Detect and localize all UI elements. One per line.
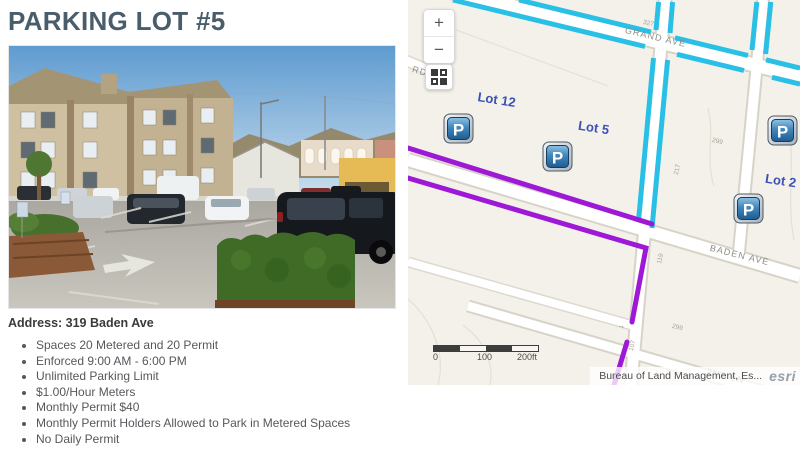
svg-text:P: P [453,121,464,140]
svg-text:P: P [777,123,788,142]
attribution-text: Bureau of Land Management, Es... [599,370,762,382]
svg-text:P: P [743,201,754,220]
svg-text:299: 299 [711,137,724,146]
lot-12-label: Lot 12 [477,89,517,110]
svg-text:P: P [552,149,563,168]
zoom-out-button[interactable]: − [424,37,454,63]
map-zoom-control: + − [423,9,455,64]
esri-logo[interactable]: esri [769,368,796,384]
lot-2-label: Lot 2 [764,171,797,191]
lot-details-list: Spaces 20 Metered and 20 Permit Enforced… [8,338,428,447]
parking-lot-page: PARKING LOT #5 [0,0,800,461]
lot-address: Address: 319 Baden Ave [8,316,154,330]
page-title: PARKING LOT #5 [8,6,226,37]
parking-marker-icon[interactable]: P [543,142,572,171]
list-item: Monthly Permit Holders Allowed to Park i… [36,416,428,432]
basemap-gallery-button[interactable] [425,64,453,90]
map-scalebar: 0 100 200ft [433,345,545,363]
list-item: Monthly Permit $40 [36,400,428,416]
svg-text:299: 299 [671,323,684,332]
parking-marker-icon[interactable]: P [734,194,763,223]
parking-lot-photo-image [9,46,395,308]
svg-text:327: 327 [642,19,655,28]
one-way-arrow-icon: → [617,320,627,330]
list-item: Spaces 20 Metered and 20 Permit [36,338,428,354]
parking-marker-icon[interactable]: P [444,114,473,143]
parking-lot-photo [8,45,396,309]
list-item: No Daily Permit [36,432,428,448]
basemap-grid-icon [431,69,447,85]
svg-text:217: 217 [673,163,682,176]
lot-5-label: Lot 5 [577,118,610,138]
map-graphics: GRAND AVE BADEN AVE 2ND LN RD 327 299 21… [408,0,800,385]
scalebar-end: 200ft [517,352,537,362]
parking-marker-icon[interactable]: P [768,116,797,145]
zoom-in-button[interactable]: + [424,10,454,36]
scalebar-mid: 100 [477,352,492,362]
svg-text:119: 119 [656,252,665,264]
scalebar-start: 0 [433,352,438,362]
list-item: $1.00/Hour Meters [36,385,428,401]
map-attribution: Bureau of Land Management, Es... esri [590,367,800,385]
map-canvas[interactable]: GRAND AVE BADEN AVE 2ND LN RD 327 299 21… [408,0,800,385]
lot-details-panel: PARKING LOT #5 [0,0,404,461]
list-item: Unlimited Parking Limit [36,369,428,385]
list-item: Enforced 9:00 AM - 6:00 PM [36,354,428,370]
scalebar-bar [433,345,539,352]
